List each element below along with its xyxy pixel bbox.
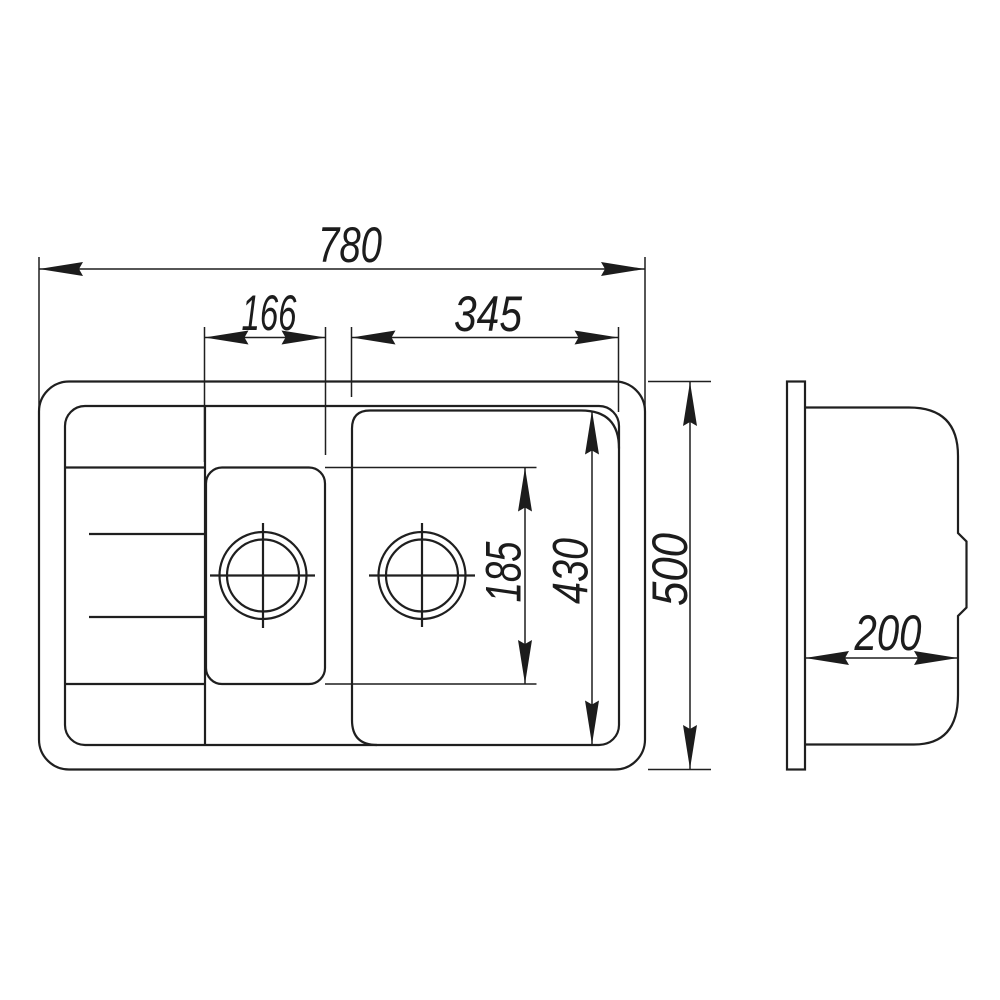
svg-text:780: 780 (318, 217, 382, 273)
svg-text:430: 430 (543, 538, 599, 604)
svg-text:345: 345 (454, 286, 522, 342)
svg-text:166: 166 (242, 285, 297, 341)
svg-text:500: 500 (642, 533, 698, 606)
svg-text:200: 200 (854, 605, 922, 661)
svg-text:185: 185 (476, 541, 532, 602)
